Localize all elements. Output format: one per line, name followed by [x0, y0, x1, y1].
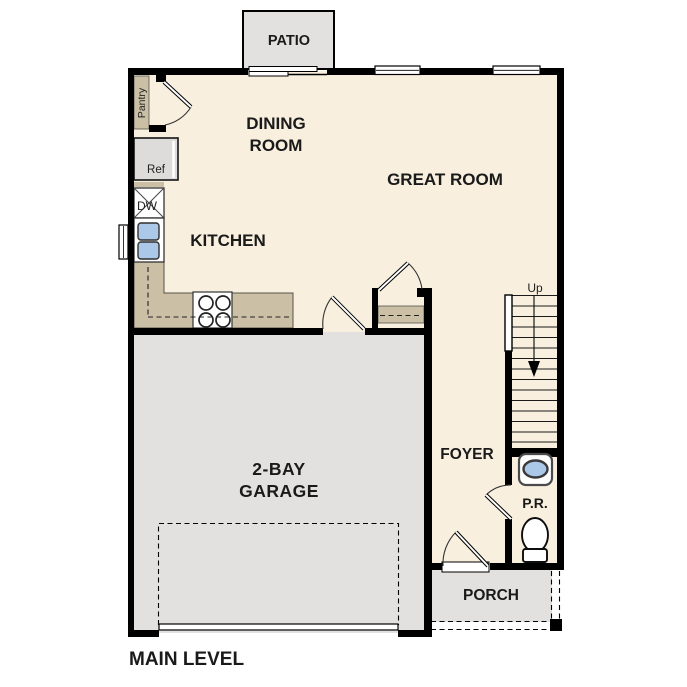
- wall-segment: [505, 351, 512, 457]
- wall-segment: [128, 630, 159, 637]
- garage-label-line2: GARAGE: [239, 481, 319, 501]
- sliding-door-panel: [249, 72, 288, 77]
- sink-basin: [138, 223, 159, 240]
- floor-plan: PATIO DINING ROOM GREAT ROOM KITCHEN 2-B…: [0, 0, 687, 687]
- sliding-door-panel: [249, 67, 317, 72]
- foyer-label: FOYER: [440, 446, 493, 463]
- garage-label-line1: 2-BAY: [252, 459, 305, 479]
- wall-segment: [490, 563, 564, 570]
- dishwasher-label: DW: [137, 199, 158, 213]
- wall-segment: [505, 457, 512, 485]
- dining-room-label-line2: ROOM: [250, 136, 303, 155]
- wall-segment: [505, 519, 512, 563]
- toilet-tank: [523, 549, 547, 562]
- wall-segment: [128, 68, 248, 75]
- porch-label: PORCH: [463, 587, 519, 604]
- closet-shelf: [378, 306, 424, 323]
- garage-door: [159, 624, 398, 630]
- wall-segment: [128, 68, 134, 637]
- stove-burner: [199, 296, 213, 310]
- sink-basin: [138, 242, 159, 259]
- wall-segment: [557, 68, 564, 570]
- wall-segment: [128, 328, 323, 335]
- front-door-step: [442, 562, 489, 572]
- floor-plan-page: PATIO DINING ROOM GREAT ROOM KITCHEN 2-B…: [0, 0, 687, 687]
- wall-segment: [156, 68, 166, 82]
- stairs-up-label: Up: [527, 281, 543, 295]
- vanity-sink: [524, 461, 548, 478]
- wall-segment: [417, 288, 424, 297]
- stove-burner: [216, 296, 230, 310]
- kitchen-label: KITCHEN: [190, 231, 266, 250]
- wall-segment: [424, 288, 432, 637]
- counter-strip: [134, 182, 164, 187]
- plan-title: MAIN LEVEL: [129, 649, 244, 670]
- pantry-label: Pantry: [136, 87, 148, 118]
- powder-room-label: P.R.: [522, 495, 547, 511]
- patio-label: PATIO: [268, 33, 310, 49]
- wall-segment: [149, 125, 166, 132]
- refrigerator-label: Ref: [147, 164, 166, 176]
- great-room-label: GREAT ROOM: [387, 170, 503, 189]
- dining-room-label-line1: DINING: [246, 114, 306, 133]
- stair-railing: [505, 295, 512, 351]
- wall-segment: [372, 288, 378, 335]
- wall-segment: [424, 563, 442, 570]
- stove-burner: [199, 313, 213, 327]
- toilet-bowl: [522, 518, 548, 552]
- wall-segment: [398, 630, 432, 637]
- stove-burner: [216, 313, 230, 327]
- porch-post: [550, 619, 562, 631]
